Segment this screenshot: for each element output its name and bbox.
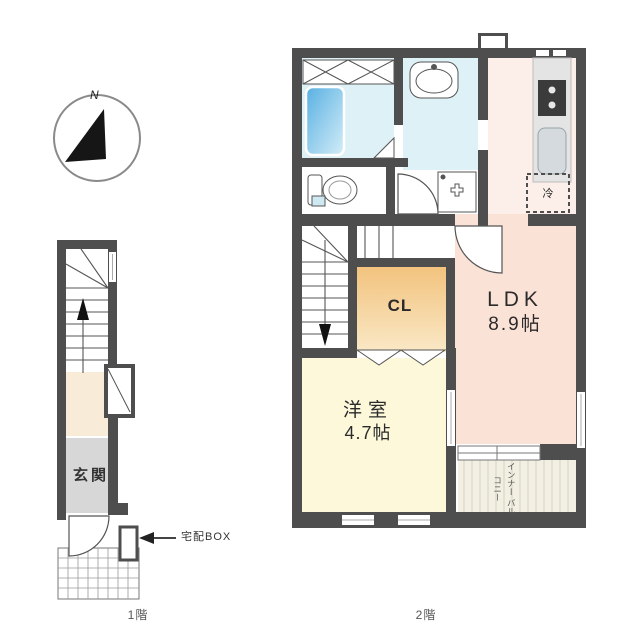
- kitchen-sink-icon: [538, 128, 566, 174]
- hall-floor: [66, 372, 108, 436]
- compass-north-label: N: [90, 88, 99, 102]
- ldk-size: 8.9帖: [452, 314, 578, 336]
- washbasin-icon: [410, 62, 458, 98]
- caption-2f: 2階: [406, 606, 446, 623]
- closet-label: CL: [372, 296, 428, 316]
- compass-needle-icon: [55, 96, 139, 180]
- western-room-name: 洋室: [307, 400, 429, 422]
- meter-box-icon: [106, 366, 133, 416]
- washer-pan-icon: [438, 172, 476, 212]
- stove-icon: [538, 80, 566, 116]
- toilet-icon: [308, 175, 357, 206]
- bathtub-icon: [306, 87, 344, 155]
- pipe-space-box: [478, 33, 508, 49]
- balcony-label: インナー バルコニー: [490, 462, 517, 516]
- delivery-box-arrow-icon: [139, 532, 154, 544]
- ldk-name: LDK: [452, 288, 578, 312]
- compass-icon: [53, 94, 141, 182]
- ldk-room-label: LDK 8.9帖: [452, 288, 578, 336]
- delivery-box: [120, 527, 137, 560]
- entrance-label: 玄関: [61, 467, 121, 484]
- kitchen-counter-icon: [533, 58, 571, 182]
- bathroom-window-icon: [303, 60, 394, 84]
- western-room-size: 4.7帖: [307, 423, 429, 444]
- balcony-label-line1: インナー: [506, 462, 516, 496]
- delivery-box-arrow-line: [154, 537, 176, 539]
- delivery-box-label: 宅配BOX: [181, 531, 261, 544]
- caption-1f: 1階: [118, 606, 158, 623]
- western-room-label: 洋室 4.7帖: [307, 400, 429, 444]
- refrigerator-label: 冷: [535, 188, 561, 201]
- floorplan-canvas: N: [0, 0, 640, 640]
- floor1-plan: [57, 240, 140, 600]
